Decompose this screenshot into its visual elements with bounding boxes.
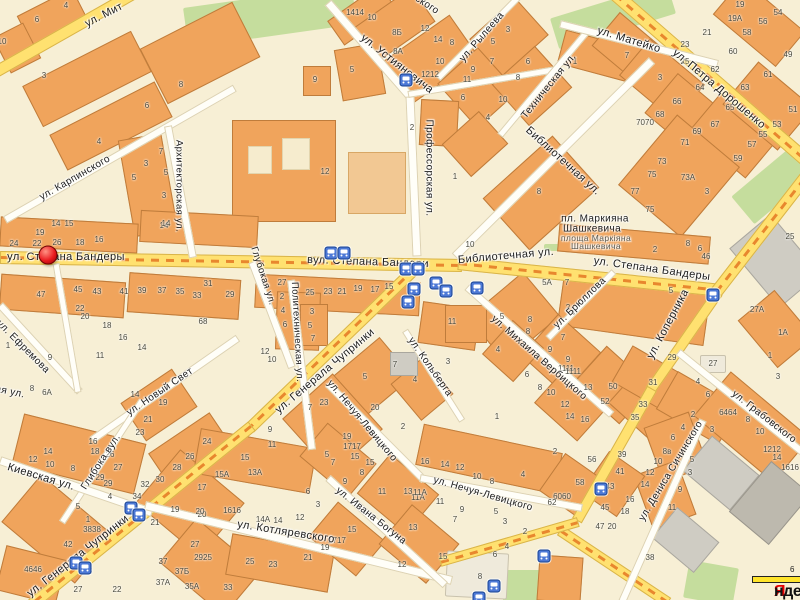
building-number-label: 14: [52, 220, 61, 228]
building-number-label: 1А: [778, 329, 788, 337]
building-number-label: 37А: [156, 579, 170, 587]
building-number-label: 10: [368, 14, 377, 22]
building-number-label: 11: [448, 318, 456, 326]
building-number-label: 15: [385, 283, 394, 291]
building-number-label: 33: [193, 292, 202, 300]
building-number-label: 8: [526, 328, 530, 336]
building-number-label: 16: [89, 438, 98, 446]
building-number-label: 14: [131, 391, 140, 399]
transit-stop-icon[interactable]: [473, 592, 486, 600]
building-number-label: 10: [756, 428, 765, 436]
transit-stop-icon[interactable]: [440, 285, 453, 298]
building-number-label: 75: [648, 171, 657, 179]
building-number-label: 25: [786, 233, 795, 241]
building-number-label: 15: [366, 459, 375, 467]
building-number-label: 2: [401, 423, 405, 431]
building-number-label: 71: [681, 139, 690, 147]
building-number-label: 47: [596, 523, 605, 531]
building-number-label: 18: [103, 322, 112, 330]
building-number-label: 27А: [750, 306, 764, 314]
building-number-label: 9: [471, 66, 475, 74]
building-number-label: 17: [198, 484, 207, 492]
transit-stop-icon[interactable]: [400, 74, 413, 87]
building-number-label: 13А: [248, 469, 262, 477]
building-number-label: 8: [528, 316, 532, 324]
building-number-label: 15: [241, 454, 250, 462]
building-number-label: 4: [486, 114, 490, 122]
building-number-label: 12: [398, 561, 407, 569]
building-number-label: 1616: [781, 464, 799, 472]
street-name-label: Шашкевича: [571, 241, 621, 251]
building-number-label: 5: [325, 451, 329, 459]
building-number-label: 73А: [681, 174, 695, 182]
building-number-label: 27: [709, 360, 718, 368]
building-number-label: 4: [505, 543, 509, 551]
building-number-label: 4: [496, 346, 500, 354]
building-number-label: 4: [108, 493, 112, 501]
building-number-label: 41: [616, 468, 625, 476]
building-number-label: 15: [351, 453, 360, 461]
building-number-label: 18: [621, 508, 630, 516]
building-number-label: 19: [159, 399, 168, 407]
building-number-label: 16: [581, 416, 590, 424]
building-number-label: 2: [653, 246, 657, 254]
building-number-label: 38: [646, 554, 655, 562]
building-number-label: 56: [759, 18, 768, 26]
building-number-label: 41: [120, 288, 129, 296]
building-number-label: 9: [566, 356, 570, 364]
building-number-label: 3: [776, 373, 780, 381]
building-number-label: 24: [10, 240, 19, 248]
building-number-label: 3: [42, 72, 46, 80]
building-number-label: 19: [171, 506, 180, 514]
building-number-label: 27: [278, 279, 287, 287]
building-number-label: 7: [453, 516, 457, 524]
building-number-label: 54: [774, 9, 783, 17]
building-number-label: 63: [741, 84, 750, 92]
transit-stop-icon[interactable]: [488, 580, 501, 593]
building-number-label: 2925: [194, 554, 212, 562]
building-number-label: 22: [33, 240, 42, 248]
building-number-label: 1: [768, 352, 772, 360]
building-number-label: 47: [37, 291, 46, 299]
building-number-label: 1: [86, 516, 90, 524]
building-number-label: 11: [668, 504, 676, 512]
building-number-label: 8: [360, 469, 364, 477]
building-number-label: 7: [490, 58, 494, 66]
building-number-label: 57: [748, 141, 757, 149]
building-number-label: 37Б: [175, 568, 189, 576]
building-number-label: 6А: [42, 389, 52, 397]
building-number-label: 21: [144, 416, 153, 424]
building-number-label: 14: [641, 481, 650, 489]
building-number-label: 25: [246, 558, 255, 566]
building-number-label: 18: [76, 239, 85, 247]
building-number-label: 52: [601, 398, 610, 406]
building-number-label: 10: [466, 241, 475, 249]
building-number-label: 55: [759, 131, 768, 139]
building-number-label: 6: [145, 102, 149, 110]
building-number-label: 53: [773, 121, 782, 129]
building-number-label: 11А: [413, 489, 427, 497]
building-number-label: 14: [441, 461, 450, 469]
building-number-label: 2: [691, 411, 695, 419]
building-number-label: 5: [350, 66, 354, 74]
building-number-label: 3: [316, 501, 320, 509]
building-number-label: 6: [283, 321, 287, 329]
building-number-label: 24: [203, 438, 212, 446]
building-number-label: 5: [132, 174, 136, 182]
building-number-label: 10: [436, 58, 445, 66]
building-number-label: 64: [696, 84, 705, 92]
building-number-label: 7: [159, 148, 163, 156]
building-number-label: 12: [456, 464, 465, 472]
building-number-label: 20: [608, 523, 617, 531]
street-name-label: Профессорская ул.: [424, 120, 435, 217]
building: [248, 146, 272, 174]
building-number-label: 8в: [663, 448, 672, 456]
building-number-label: 14: [773, 454, 782, 462]
building-number-label: 5: [690, 456, 694, 464]
building-number-label: 9: [48, 354, 52, 362]
building-number-label: 33: [639, 401, 648, 409]
building-number-label: 11: [268, 441, 276, 449]
street-name-label: ул. Степана Бандеры: [7, 251, 125, 263]
building: [348, 152, 406, 214]
building-number-label: 5: [308, 322, 312, 330]
building-number-label: 61: [764, 71, 773, 79]
transit-stop-icon[interactable]: [133, 509, 146, 522]
building-number-label: 8: [490, 478, 494, 486]
building-number-label: 69: [693, 128, 702, 136]
building: [139, 210, 259, 248]
map-marker[interactable]: [39, 246, 58, 265]
building-number-label: 2: [523, 528, 527, 536]
building-number-label: 58: [576, 479, 585, 487]
building-number-label: 23: [324, 288, 333, 296]
building-number-label: 11: [463, 76, 471, 84]
building-number-label: 6: [706, 391, 710, 399]
building-number-label: 6: [525, 371, 529, 379]
building-number-label: 15: [439, 553, 448, 561]
building-number-label: 7: [565, 279, 569, 287]
transit-stop-icon[interactable]: [338, 247, 351, 260]
building-number-label: 8: [450, 39, 454, 47]
building-number-label: 14: [44, 448, 53, 456]
building-number-label: 14: [138, 344, 147, 352]
building-number-label: 23: [136, 429, 145, 437]
building-number-label: 4: [64, 2, 68, 10]
building-number-label: 1616: [223, 507, 241, 515]
building-number-label: 7: [561, 334, 565, 342]
building-number-label: 8: [537, 188, 541, 196]
building-number-label: 6464: [719, 409, 737, 417]
building-number-label: 14: [162, 220, 171, 228]
building-number-label: 8Б: [392, 29, 402, 37]
building-number-label: 1: [6, 342, 10, 350]
building-number-label: 5А: [542, 279, 552, 287]
building-number-label: 19: [354, 285, 363, 293]
building-number-label: 21: [304, 554, 313, 562]
transit-stop-icon[interactable]: [412, 263, 425, 276]
building-number-label: 15: [65, 220, 74, 228]
building-number-label: 7: [393, 361, 397, 369]
building-number-label: 27: [114, 464, 123, 472]
building-number-label: 3: [506, 26, 510, 34]
building-number-label: 4: [413, 376, 417, 384]
building-number-label: 10: [499, 96, 508, 104]
building-number-label: 8: [538, 384, 542, 392]
building-number-label: 9: [460, 506, 464, 514]
building-number-label: 8: [179, 81, 183, 89]
building-number-label: 8: [686, 240, 690, 248]
building-number-label: 8: [71, 465, 75, 473]
building-number-label: 34: [133, 493, 142, 501]
building-number-label: 7070: [636, 119, 654, 127]
building-number-label: 1717: [343, 443, 361, 451]
building-number-label: 59: [734, 155, 743, 163]
building-number-label: 75: [646, 206, 655, 214]
building-number-label: 66: [673, 98, 682, 106]
building-number-label: 8: [478, 573, 482, 581]
building-number-label: 39: [618, 451, 627, 459]
building-number-label: 6: [493, 551, 497, 559]
building-number-label: 5: [164, 169, 168, 177]
building-number-label: 73: [658, 158, 667, 166]
building-number-label: 39: [138, 287, 147, 295]
building-number-label: 77: [631, 188, 640, 196]
building-number-label: 1414: [346, 9, 364, 17]
building-number-label: 5: [363, 373, 367, 381]
building-number-label: 68: [656, 111, 665, 119]
building-number-label: 25: [306, 289, 315, 297]
building-number-label: 7: [625, 52, 629, 60]
transit-stop-icon[interactable]: [471, 282, 484, 295]
building-number-label: 16: [95, 236, 104, 244]
building-number-label: 12: [561, 401, 570, 409]
transit-stop-icon[interactable]: [707, 289, 720, 302]
building-number-label: 5: [491, 38, 495, 46]
building-number-label: 22: [113, 586, 122, 594]
building-number-label: 1: [495, 413, 499, 421]
building-number-label: 1: [453, 173, 457, 181]
building-number-label: 3: [446, 358, 450, 366]
building-number-label: 8: [516, 74, 520, 82]
building-number-label: 14: [434, 36, 443, 44]
building-number-label: 12: [421, 25, 430, 33]
building-number-label: 30: [156, 476, 165, 484]
building-number-label: 12: [321, 168, 330, 176]
building-number-label: 45: [74, 286, 83, 294]
transit-stop-icon[interactable]: [595, 483, 608, 496]
building-number-label: 23: [269, 561, 278, 569]
building-number-label: 51: [789, 106, 798, 114]
building-number-label: 19: [36, 229, 45, 237]
street-name-label: ая ул.: [0, 384, 26, 401]
building-number-label: 43: [93, 288, 102, 296]
transit-stop-icon[interactable]: [538, 550, 551, 563]
building-number-label: 6: [461, 94, 465, 102]
building-number-label: 9: [268, 426, 272, 434]
building-number-label: 12: [29, 456, 38, 464]
building-number-label: 4: [521, 471, 525, 479]
building-number-label: 29: [104, 480, 113, 488]
building-number-label: 10: [0, 38, 6, 46]
building-number-label: 2: [280, 293, 284, 301]
building-number-label: 12: [646, 469, 655, 477]
building-number-label: 16: [421, 458, 430, 466]
building-number-label: 33: [224, 584, 233, 592]
building-number-label: 2: [410, 124, 414, 132]
building-number-label: 19: [343, 433, 352, 441]
building-number-label: 32: [141, 481, 150, 489]
building-number-label: 4: [281, 307, 285, 315]
building: [127, 272, 242, 320]
building-number-label: 67: [711, 121, 720, 129]
building-number-label: 26: [186, 453, 195, 461]
building-number-label: 27: [74, 586, 83, 594]
building-number-label: 6: [671, 434, 675, 442]
building-number-label: 21: [338, 288, 347, 296]
building-number-label: 3: [710, 426, 714, 434]
building-number-label: 49: [784, 51, 793, 59]
building-number-label: 11: [378, 488, 386, 496]
building: [282, 138, 310, 170]
building-number-label: 21: [151, 519, 160, 527]
transit-stop-icon[interactable]: [402, 296, 415, 309]
building-number-label: 31: [204, 280, 213, 288]
scale-bar-label: 6: [790, 565, 794, 574]
building-number-label: 3: [144, 160, 148, 168]
transit-stop-icon[interactable]: [325, 247, 338, 260]
building-number-label: 8: [30, 385, 34, 393]
building-number-label: 15: [348, 526, 357, 534]
building-number-label: 3: [658, 74, 662, 82]
building-number-label: 35: [176, 288, 185, 296]
map-canvas[interactable]: 641038647355314121414108Б121488А10121291…: [0, 0, 800, 600]
building-number-label: 5: [494, 508, 498, 516]
building-number-label: 3: [503, 518, 507, 526]
building-number-label: 7: [311, 335, 315, 343]
building-number-label: 46: [702, 253, 711, 261]
building-number-label: 23: [320, 399, 329, 407]
building-number-label: 45: [601, 504, 610, 512]
building-number-label: 11: [436, 498, 444, 506]
street-name-label: Архитекторская ул.: [174, 140, 185, 232]
building-number-label: 28: [173, 464, 182, 472]
building-number-label: 9: [313, 76, 317, 84]
building-number-label: 19: [321, 544, 330, 552]
building-number-label: 23: [681, 41, 690, 49]
building-number-label: 4646: [24, 566, 42, 574]
building-number-label: 10: [547, 389, 556, 397]
building-number-label: 4: [696, 378, 700, 386]
building-number-label: 11: [96, 352, 104, 360]
building-number-label: 5: [76, 503, 80, 511]
building-number-label: 21: [703, 29, 712, 37]
building-number-label: 16: [119, 334, 128, 342]
building-number-label: 56: [588, 456, 597, 464]
building-number-label: 58: [743, 29, 752, 37]
building-number-label: 3: [688, 469, 692, 477]
building-number-label: 35: [631, 414, 640, 422]
building-number-label: 7: [331, 459, 335, 467]
scale-bar: [752, 576, 800, 583]
building-number-label: 17: [371, 286, 380, 294]
building-number-label: 31: [649, 379, 658, 387]
building-number-label: 5: [669, 287, 673, 295]
building-number-label: 27: [191, 541, 200, 549]
building-number-label: 13: [409, 524, 418, 532]
building-number-label: 10: [268, 356, 277, 364]
building-number-label: 20: [196, 508, 205, 516]
building-number-label: 7: [308, 404, 312, 412]
building-number-label: 9: [343, 478, 347, 486]
building-number-label: 29: [226, 291, 235, 299]
transit-stop-icon[interactable]: [408, 283, 421, 296]
building-number-label: 3: [162, 192, 166, 200]
building-number-label: 15А: [215, 471, 229, 479]
building-number-label: 20: [371, 404, 380, 412]
building-number-label: 10: [473, 473, 482, 481]
building-number-label: 10: [654, 458, 663, 466]
building-number-label: 6: [526, 58, 530, 66]
building-number-label: 20: [81, 313, 90, 321]
building-number-label: 14: [566, 413, 575, 421]
building-number-label: 10: [46, 461, 55, 469]
building-number-label: 68: [199, 318, 208, 326]
building-number-label: 62: [548, 499, 557, 507]
building-number-label: 9: [548, 346, 552, 354]
building-number-label: 8: [746, 416, 750, 424]
building-number-label: 62: [711, 66, 720, 74]
building-number-label: 6: [35, 16, 39, 24]
building-number-label: 50: [609, 383, 618, 391]
building-number-label: 19А: [728, 15, 742, 23]
transit-stop-icon[interactable]: [79, 562, 92, 575]
building-number-label: 12: [296, 514, 305, 522]
building-number-label: 6: [306, 488, 310, 496]
building-number-label: 29: [668, 354, 677, 362]
yandex-logo-rest: ндекс: [774, 583, 800, 600]
building-number-label: 35А: [185, 583, 199, 591]
building-number-label: 9: [678, 486, 682, 494]
building-number-label: 60: [729, 48, 738, 56]
building-number-label: 37: [158, 287, 167, 295]
building-number-label: 4: [681, 424, 685, 432]
building-number-label: 2: [553, 448, 557, 456]
building-number-label: 37: [159, 558, 168, 566]
building-number-label: 16: [626, 496, 635, 504]
building-number-label: 3: [310, 308, 314, 316]
building-number-label: 26: [53, 239, 62, 247]
building-number-label: 3: [705, 188, 709, 196]
building-number-label: 42: [64, 541, 73, 549]
building-number-label: 4: [97, 138, 101, 146]
building-number-label: 19: [736, 1, 745, 9]
